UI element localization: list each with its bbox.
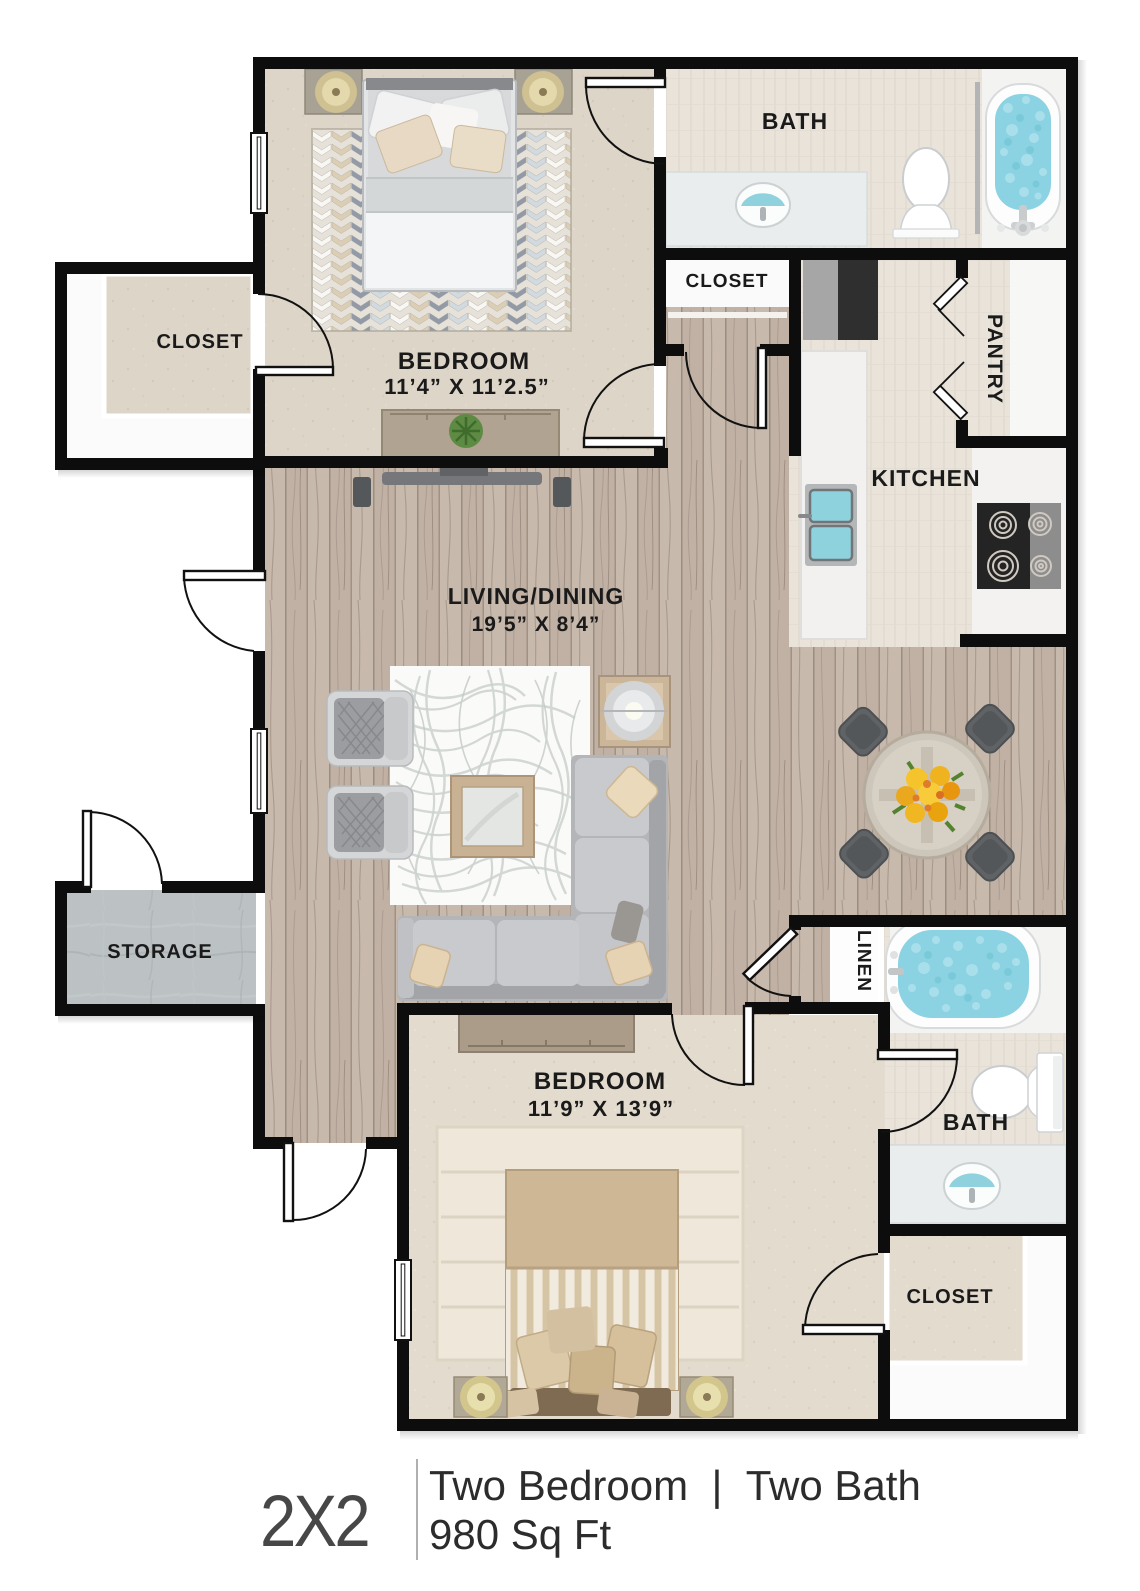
svg-text:PANTRY: PANTRY [983,314,1006,404]
svg-text:980 Sq Ft: 980 Sq Ft [429,1511,611,1558]
svg-text:CLOSET: CLOSET [685,271,768,292]
svg-text:BATH: BATH [762,108,828,134]
svg-text:BATH: BATH [943,1109,1009,1135]
svg-text:LIVING/DINING: LIVING/DINING [448,583,625,609]
svg-text:CLOSET: CLOSET [156,331,243,353]
svg-text:BEDROOM: BEDROOM [398,348,530,375]
svg-text:STORAGE: STORAGE [107,941,213,963]
svg-text:LINEN: LINEN [853,930,874,992]
svg-text:2X2: 2X2 [260,1481,368,1562]
svg-text:KITCHEN: KITCHEN [871,465,980,491]
svg-text:Two Bedroom | Two Bath: Two Bedroom | Two Bath [429,1462,921,1509]
svg-text:BEDROOM: BEDROOM [534,1068,666,1095]
svg-text:11’9” X 13’9”: 11’9” X 13’9” [528,1096,674,1121]
svg-text:CLOSET: CLOSET [906,1286,993,1308]
svg-text:19’5” X 8’4”: 19’5” X 8’4” [472,613,601,636]
svg-text:11’4” X 11’2.5”: 11’4” X 11’2.5” [384,374,549,399]
